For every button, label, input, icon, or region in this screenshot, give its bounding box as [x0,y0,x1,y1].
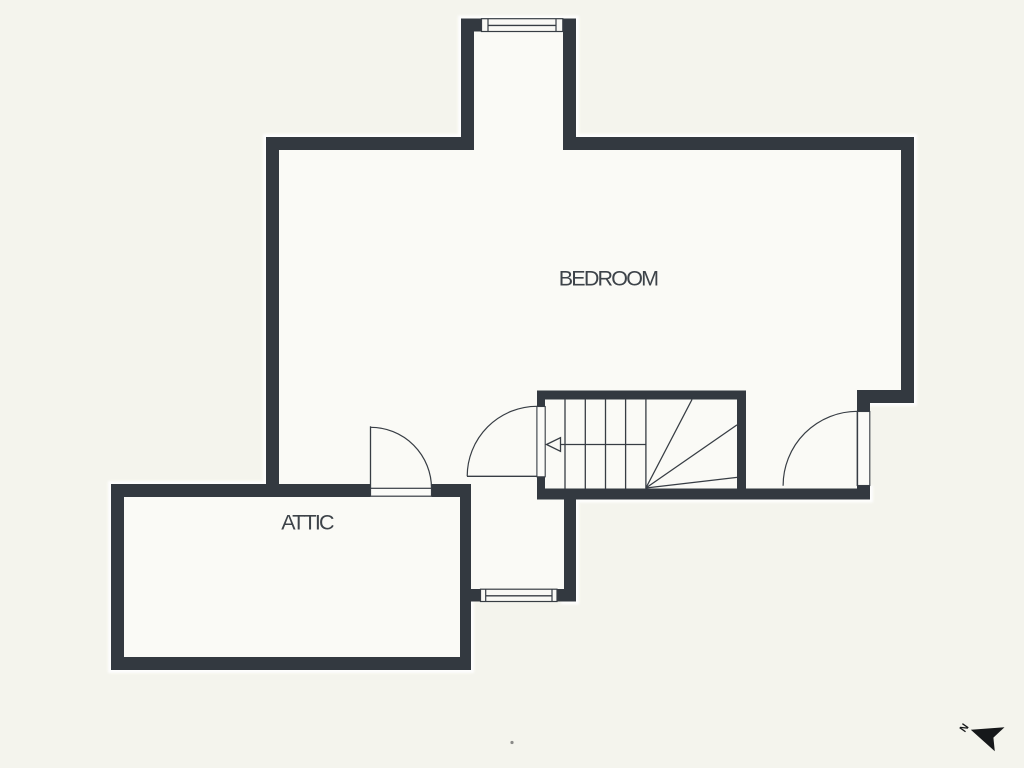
svg-text:BEDROOM: BEDROOM [559,267,658,291]
svg-text:ATTIC: ATTIC [281,511,334,535]
